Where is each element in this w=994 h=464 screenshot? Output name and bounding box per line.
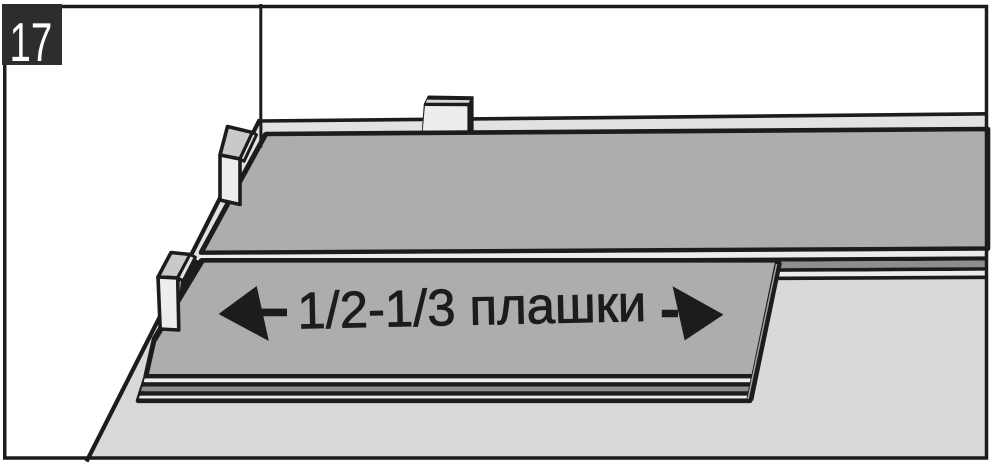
svg-text:17: 17 (10, 12, 53, 73)
svg-text:1/2-1/3 плашки: 1/2-1/3 плашки (297, 275, 647, 340)
